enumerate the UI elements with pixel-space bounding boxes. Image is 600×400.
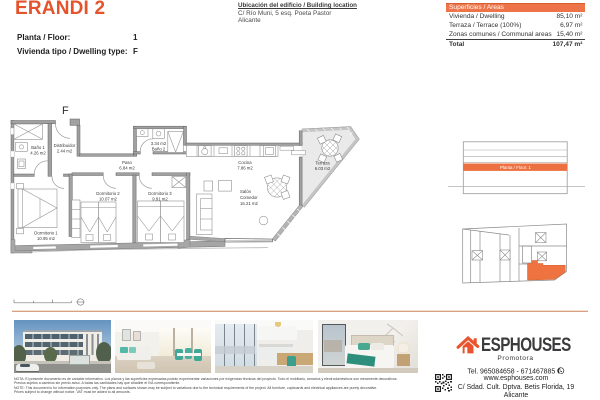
svg-text:10.95 m2: 10.95 m2 bbox=[37, 236, 56, 241]
svg-text:Planta / Floor: 1: Planta / Floor: 1 bbox=[500, 165, 532, 170]
svg-text:3.34 m2: 3.34 m2 bbox=[151, 141, 167, 146]
svg-text:Distribuidor: Distribuidor bbox=[54, 143, 76, 148]
svg-text:Paso: Paso bbox=[122, 160, 132, 165]
svg-text:Terraza: Terraza bbox=[315, 161, 330, 166]
svg-text:7.86 m2: 7.86 m2 bbox=[237, 166, 253, 171]
svg-text:16.21 m2: 16.21 m2 bbox=[240, 201, 259, 206]
svg-text:6.03 m2: 6.03 m2 bbox=[315, 166, 331, 171]
svg-text:F: F bbox=[62, 105, 69, 117]
svg-text:4.26 m2: 4.26 m2 bbox=[30, 151, 46, 156]
svg-text:Dormitorio 2: Dormitorio 2 bbox=[96, 191, 120, 196]
svg-text:10.07 m2: 10.07 m2 bbox=[99, 197, 118, 202]
svg-text:2.44 m2: 2.44 m2 bbox=[57, 149, 73, 154]
svg-text:Dormitorio 3: Dormitorio 3 bbox=[148, 191, 172, 196]
svg-text:Baño 2: Baño 2 bbox=[152, 147, 166, 152]
svg-text:Comedor: Comedor bbox=[240, 195, 258, 200]
svg-text:Dormitorio 1: Dormitorio 1 bbox=[34, 231, 58, 236]
svg-text:Cocina: Cocina bbox=[238, 160, 252, 165]
svg-text:Salón: Salón bbox=[240, 189, 252, 194]
svg-text:6.84 m2: 6.84 m2 bbox=[119, 166, 135, 171]
svg-text:Baño 1: Baño 1 bbox=[31, 145, 45, 150]
svg-text:9.91 m2: 9.91 m2 bbox=[152, 197, 168, 202]
